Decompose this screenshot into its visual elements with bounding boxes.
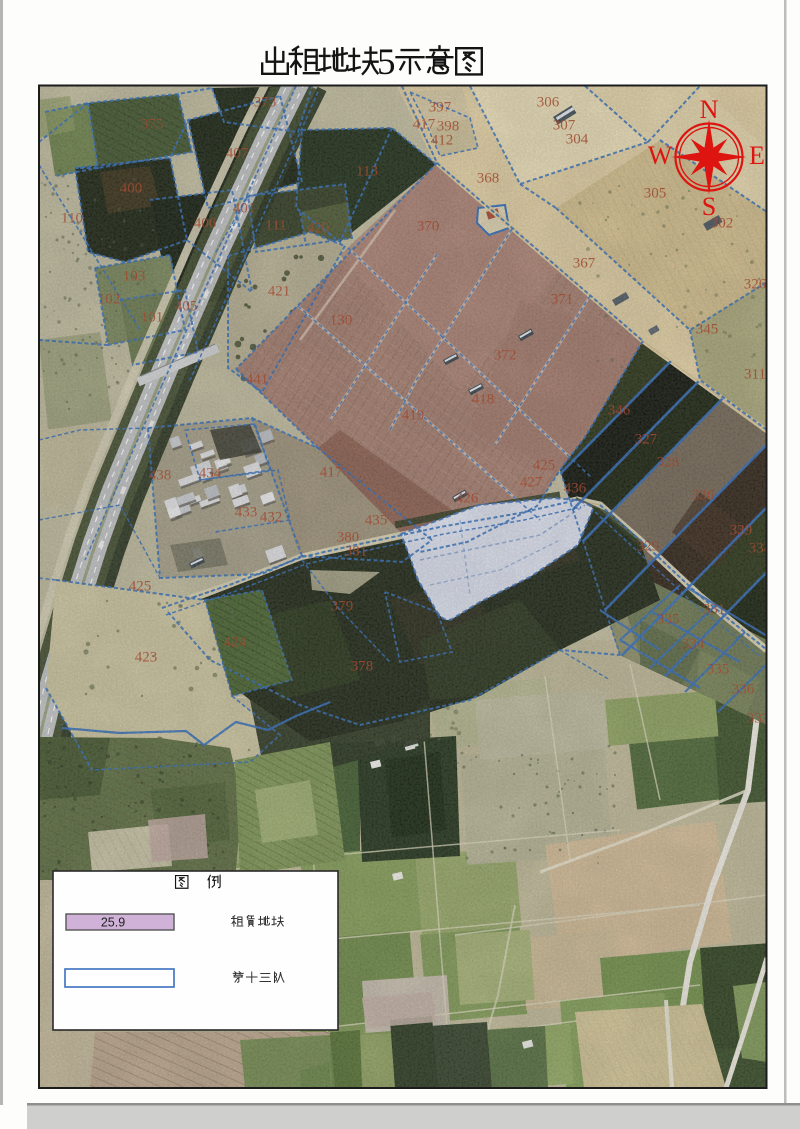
svg-text:S: S <box>702 192 716 221</box>
svg-text:N: N <box>700 95 719 124</box>
svg-text:5: 5 <box>377 42 396 83</box>
svg-text:25.9: 25.9 <box>101 916 125 930</box>
svg-text:E: E <box>749 141 765 170</box>
svg-text:W: W <box>648 141 673 170</box>
